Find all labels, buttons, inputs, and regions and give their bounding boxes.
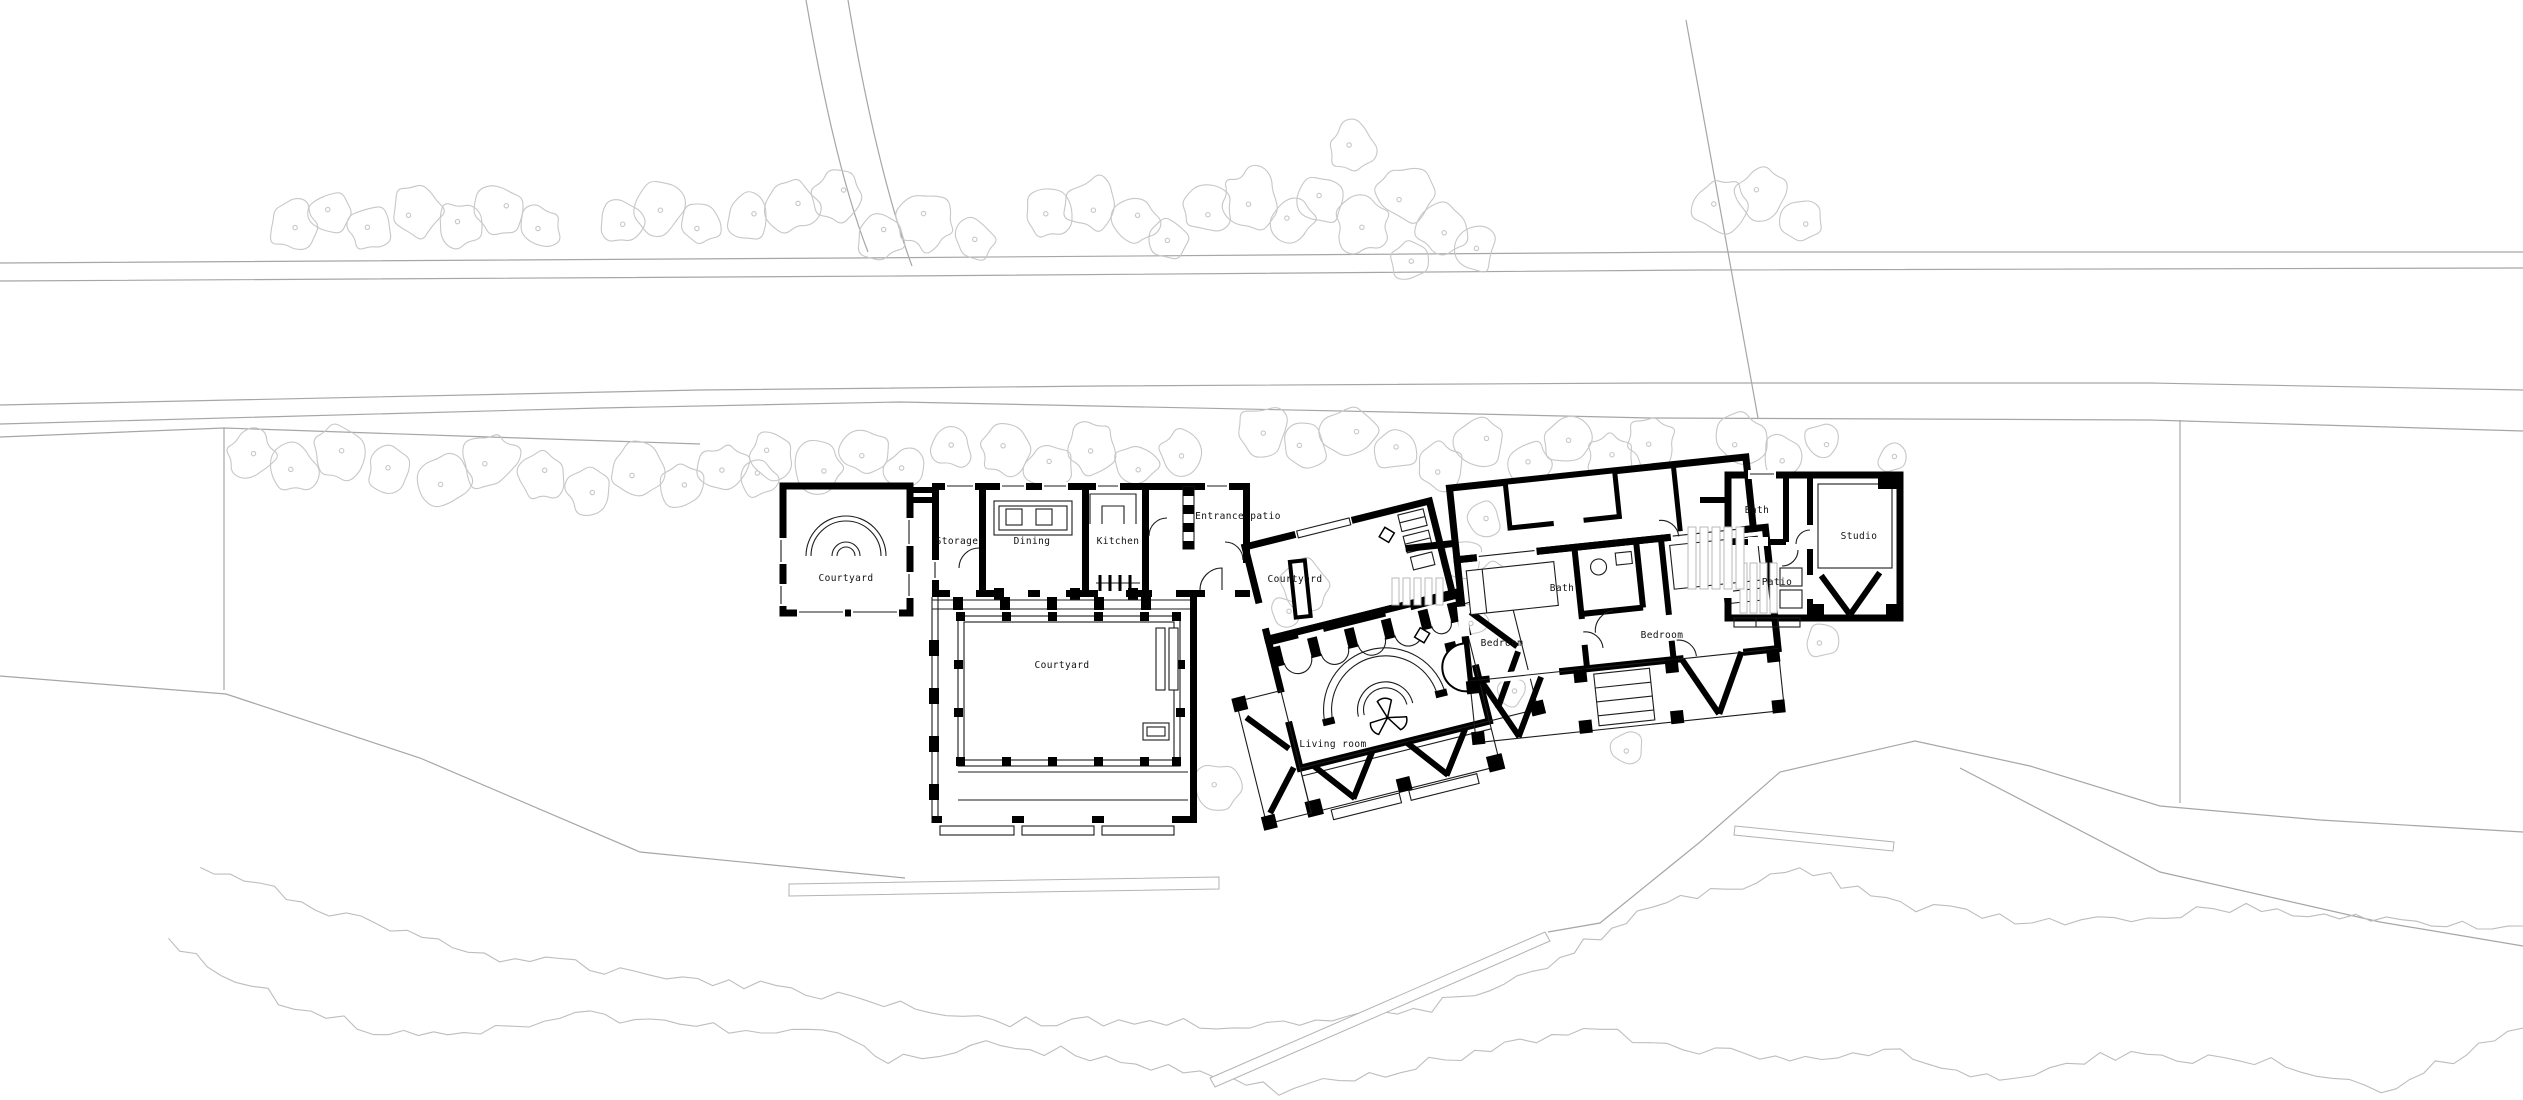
driveway-line (806, 0, 868, 252)
road-lower-line (0, 402, 2523, 431)
tree-center-dot (1047, 459, 1051, 463)
door-arc (1200, 568, 1222, 590)
kitchen-counter (1090, 494, 1136, 524)
tree-icon (955, 217, 996, 260)
tree-icon (1159, 429, 1202, 477)
tree-center-dot (720, 468, 724, 472)
tree-icon (347, 207, 391, 249)
tree-center-dot (1817, 641, 1821, 645)
tree-center-dot (1394, 445, 1398, 449)
tree-center-dot (1088, 449, 1092, 453)
tree-center-dot (1397, 197, 1401, 201)
tree-icon (1610, 732, 1641, 764)
tree-center-dot (1136, 468, 1140, 472)
tree-center-dot (536, 226, 540, 230)
diagonal-line (1686, 20, 1758, 418)
tree-icon (1330, 119, 1377, 171)
tree-center-dot (504, 204, 508, 208)
tree-center-dot (1354, 429, 1358, 433)
tree-center-dot (755, 471, 759, 475)
tree-icon (440, 204, 482, 249)
door-arc (1782, 550, 1798, 566)
label-kitchen: Kitchen (1097, 536, 1140, 547)
label-dining: Dining (1014, 536, 1051, 547)
buildings (777, 456, 1900, 837)
fan-symbol-icon (1362, 694, 1411, 739)
tree-center-dot (1044, 212, 1048, 216)
path-wall (789, 877, 1219, 896)
tree-center-dot (1733, 443, 1737, 447)
tree-center-dot (386, 466, 390, 470)
road-upper-line (0, 252, 2523, 263)
tree-center-dot (1246, 202, 1250, 206)
door-arc (1225, 542, 1243, 560)
tree-center-dot (621, 222, 625, 226)
tree-center-dot (293, 225, 297, 229)
tree-icon (1239, 408, 1288, 458)
amphitheatre-seating (1308, 634, 1447, 726)
tree-center-dot (1610, 453, 1614, 457)
contour-lines (168, 867, 2523, 1095)
label-studio: Studio (1841, 531, 1878, 542)
tree-center-dot (590, 490, 594, 494)
tree-center-dot (1261, 431, 1265, 435)
tree-icon (1115, 447, 1160, 484)
label-patio-studio: Patio (1762, 577, 1793, 588)
diamond-icon (1415, 628, 1430, 643)
label-living-room: Living room (1299, 739, 1366, 750)
tree-center-dot (251, 451, 255, 455)
label-entrance-patio: Entrance patio (1195, 511, 1281, 522)
tree-icon (521, 205, 560, 246)
tree-icon (1027, 189, 1072, 237)
tree-icon (741, 460, 779, 498)
tree-center-dot (1474, 246, 1478, 250)
tree-center-dot (1360, 225, 1364, 229)
tree-center-dot (483, 462, 487, 466)
tree-icon (474, 186, 523, 235)
tree-center-dot (1287, 609, 1291, 613)
road-branch-line (0, 428, 700, 444)
tree-icon (601, 200, 645, 241)
tree-icon (1807, 624, 1839, 657)
tree-center-dot (1712, 202, 1716, 206)
pergola-slats (1688, 527, 1744, 589)
tree-center-dot (1442, 231, 1446, 235)
tree-center-dot (949, 443, 953, 447)
rock-contour-line (200, 867, 2523, 1029)
label-bath-studio: Bath (1745, 505, 1769, 516)
tree-center-dot (899, 466, 903, 470)
tree-center-dot (1512, 689, 1516, 693)
tree-icon (1195, 765, 1242, 810)
ridge-line (1548, 741, 2523, 932)
stair-stripes (1183, 487, 1194, 549)
path-wall (1734, 826, 1894, 851)
tree-center-dot (1824, 442, 1828, 446)
tree-center-dot (1469, 621, 1473, 625)
tree-icon (811, 170, 862, 223)
tree-center-dot (1892, 454, 1896, 458)
driveway-line (848, 0, 912, 266)
tree-icon (271, 442, 320, 490)
tree-center-dot (1206, 213, 1210, 217)
tree-center-dot (1317, 193, 1321, 197)
label-courtyard-west: Courtyard (818, 573, 873, 584)
diamond-icon (1379, 527, 1394, 542)
path-wall (1210, 932, 1550, 1087)
tree-icon (634, 182, 686, 237)
tree-center-dot (1091, 208, 1095, 212)
label-bath-main: Bath (1550, 583, 1574, 594)
tree-icon (1183, 185, 1230, 231)
tree-center-dot (543, 468, 547, 472)
tree-icon (271, 199, 318, 250)
tree-center-dot (860, 454, 864, 458)
west-courtyard-block (777, 486, 934, 617)
tree-icon (394, 185, 444, 239)
label-bedroom-east: Bedroom (1641, 630, 1684, 641)
tree-center-dot (1347, 143, 1351, 147)
tree-center-dot (406, 213, 410, 217)
tree-center-dot (796, 201, 800, 205)
tree-icon (1805, 424, 1839, 457)
tree-icon (517, 450, 564, 498)
tree-center-dot (1804, 222, 1808, 226)
tree-center-dot (841, 188, 845, 192)
tree-icon (565, 467, 609, 515)
tree-icon (1765, 434, 1802, 475)
tree-center-dot (822, 469, 826, 473)
bath-fixture (1590, 558, 1608, 576)
tree-center-dot (1409, 259, 1413, 263)
tree-center-dot (1165, 238, 1169, 242)
tree-center-dot (1780, 459, 1784, 463)
road-lower-line (0, 383, 2523, 405)
tree-icon (1453, 417, 1502, 466)
tree-center-dot (289, 467, 293, 471)
tree-icon (227, 428, 277, 478)
tree-center-dot (1212, 783, 1216, 787)
studio-porch (1810, 575, 1900, 618)
tree-center-dot (1135, 213, 1139, 217)
tree-center-dot (1436, 470, 1440, 474)
tree-center-dot (1285, 216, 1289, 220)
site-plan: Courtyard Storage Dining Kitchen Entranc… (0, 0, 2523, 1100)
tree-center-dot (682, 483, 686, 487)
tree-center-dot (326, 207, 330, 211)
bath-fixture (1615, 551, 1632, 565)
tree-center-dot (455, 219, 459, 223)
tree-icon (612, 441, 666, 496)
tree-center-dot (438, 482, 442, 486)
tree-icon (858, 214, 904, 260)
tree-center-dot (921, 211, 925, 215)
tree-center-dot (1297, 443, 1301, 447)
tree-center-dot (1526, 460, 1530, 464)
tree-icon (682, 204, 722, 244)
door-arc (959, 548, 979, 568)
fireplace-arc-icon (806, 516, 886, 556)
tree-center-dot (339, 449, 343, 453)
tree-icon (1222, 165, 1277, 230)
tree-icon (463, 435, 521, 489)
site-plan-svg: Courtyard Storage Dining Kitchen Entranc… (0, 0, 2523, 1100)
tree-icon (1111, 198, 1161, 243)
tree-center-dot (1484, 436, 1488, 440)
tree-icon (1319, 407, 1379, 455)
tree-center-dot (365, 225, 369, 229)
tree-icon (1375, 168, 1435, 223)
dining-table (994, 501, 1072, 535)
tree-center-dot (1754, 188, 1758, 192)
label-bedroom-west: Bedroom (1481, 638, 1524, 649)
tree-center-dot (695, 226, 699, 230)
label-storage: Storage (936, 536, 979, 547)
door-arc (1149, 518, 1167, 536)
tree-center-dot (1566, 438, 1570, 442)
tree-center-dot (658, 208, 662, 212)
slope-line (0, 676, 905, 878)
tree-center-dot (882, 227, 886, 231)
tree-icon (839, 430, 889, 473)
tree-center-dot (752, 212, 756, 216)
tree-center-dot (973, 237, 977, 241)
tree-center-dot (764, 448, 768, 452)
main-courtyard (929, 597, 1197, 835)
tree-icon (728, 192, 766, 239)
tree-icon (308, 193, 351, 233)
tree-icon (1780, 201, 1822, 241)
tree-center-dot (1484, 516, 1488, 520)
tree-center-dot (1001, 444, 1005, 448)
label-courtyard-main: Courtyard (1034, 660, 1089, 671)
tree-icon (1285, 423, 1327, 468)
road-upper-line (0, 268, 2523, 281)
tree-center-dot (1179, 454, 1183, 458)
tree-center-dot (630, 473, 634, 477)
tree-center-dot (1624, 749, 1628, 753)
studio-inner (1818, 484, 1892, 568)
round-bay (1440, 643, 1469, 693)
tree-center-dot (1647, 442, 1651, 446)
bed (1466, 562, 1558, 615)
north-wing (931, 482, 1250, 600)
label-courtyard-small: Courtyard (1267, 574, 1322, 585)
